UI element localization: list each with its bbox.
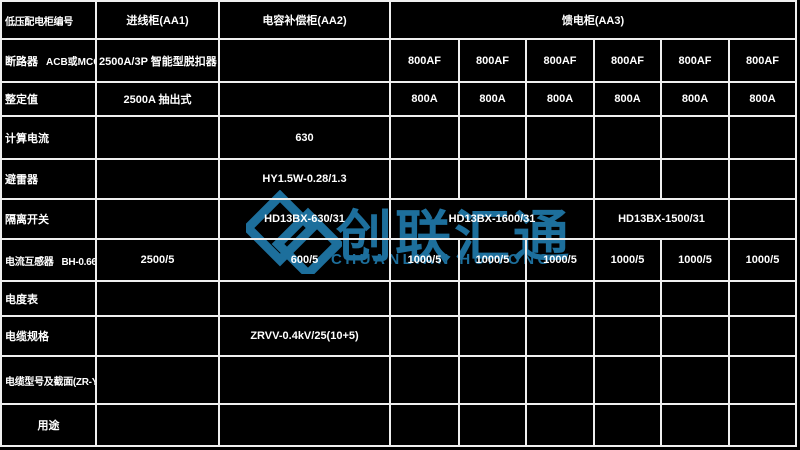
empty-cell (459, 356, 526, 404)
row-ct: 电流互感器BH-0.66 2500/5 600/5 1000/5 1000/5 … (1, 239, 796, 281)
empty-cell (526, 356, 594, 404)
ct-feeder-4: 1000/5 (594, 239, 661, 281)
header-feeder-aa3: 馈电柜(AA3) (390, 1, 796, 39)
setting-feeder-1: 800A (390, 82, 459, 116)
empty-cell (390, 116, 459, 159)
empty-cell (729, 356, 796, 404)
empty-cell (96, 404, 219, 446)
cable-spec-value: ZRVV-0.4kV/25(10+5) (219, 316, 390, 356)
empty-cell (661, 356, 729, 404)
empty-cell (219, 281, 390, 316)
empty-cell (390, 159, 459, 199)
spec-table: 低压配电柜编号 进线柜(AA1) 电容补偿柜(AA2) 馈电柜(AA3) 断路器… (0, 0, 797, 447)
purpose-label: 用途 (1, 404, 96, 446)
isolator-feeder-group2: HD13BX-1500/31 (594, 199, 729, 239)
empty-cell (729, 159, 796, 199)
row-purpose: 用途 (1, 404, 796, 446)
isolator-label: 隔离开关 (1, 199, 96, 239)
setting-feeder-3: 800A (526, 82, 594, 116)
setting-label: 整定值 (1, 82, 96, 116)
empty-cell (661, 159, 729, 199)
empty-cell (526, 159, 594, 199)
empty-cell (594, 316, 661, 356)
empty-cell (96, 316, 219, 356)
ct-feeder-1: 1000/5 (390, 239, 459, 281)
empty-cell (594, 159, 661, 199)
row-meter: 电度表 (1, 281, 796, 316)
header-corner: 低压配电柜编号 (1, 1, 96, 39)
empty-cell (96, 116, 219, 159)
breaker-feeder-4: 800AF (594, 39, 661, 82)
empty-cell (594, 116, 661, 159)
ct-feeder-3: 1000/5 (526, 239, 594, 281)
empty-cell (729, 316, 796, 356)
cable-spec-label: 电缆规格 (1, 316, 96, 356)
breaker-incoming-value: 2500A/3P 智能型脱扣器 (96, 39, 219, 82)
breaker-sublabel: ACB或MCCB (46, 57, 96, 68)
empty-cell (594, 356, 661, 404)
setting-feeder-5: 800A (661, 82, 729, 116)
row-isolator: 隔离开关 HD13BX-630/31 HD13BX-1600/31 HD13BX… (1, 199, 796, 239)
row-breaker-label: 断路器ACB或MCCB (1, 39, 96, 82)
meter-label: 电度表 (1, 281, 96, 316)
row-calc-current: 计算电流 630 (1, 116, 796, 159)
header-compensation-aa2: 电容补偿柜(AA2) (219, 1, 390, 39)
empty-cell (96, 281, 219, 316)
cable-model-label: 电缆型号及截面(ZR-YJV22) (1, 356, 96, 404)
empty-cell (526, 116, 594, 159)
calc-current-label: 计算电流 (1, 116, 96, 159)
empty-cell (729, 116, 796, 159)
empty-cell (661, 116, 729, 159)
empty-cell (219, 356, 390, 404)
setting-feeder-6: 800A (729, 82, 796, 116)
ct-feeder-6: 1000/5 (729, 239, 796, 281)
calc-current-value: 630 (219, 116, 390, 159)
empty-cell (96, 356, 219, 404)
empty-cell (526, 404, 594, 446)
ct-incoming-value: 2500/5 (96, 239, 219, 281)
empty-cell (729, 199, 796, 239)
empty-cell (594, 281, 661, 316)
breaker-feeder-2: 800AF (459, 39, 526, 82)
ct-model: BH-0.66 (62, 257, 97, 268)
empty-cell (219, 82, 390, 116)
arrester-value: HY1.5W-0.28/1.3 (219, 159, 390, 199)
empty-cell (526, 281, 594, 316)
breaker-label: 断路器 (5, 56, 38, 68)
ct-label: 电流互感器 (5, 257, 54, 268)
empty-cell (661, 316, 729, 356)
ct-label-cell: 电流互感器BH-0.66 (1, 239, 96, 281)
breaker-feeder-1: 800AF (390, 39, 459, 82)
isolator-feeder-group1: HD13BX-1600/31 (390, 199, 594, 239)
empty-cell (96, 199, 219, 239)
empty-cell (594, 404, 661, 446)
empty-cell (219, 39, 390, 82)
empty-cell (459, 281, 526, 316)
empty-cell (459, 116, 526, 159)
ct-feeder-5: 1000/5 (661, 239, 729, 281)
setting-incoming-value: 2500A 抽出式 (96, 82, 219, 116)
empty-cell (459, 404, 526, 446)
empty-cell (96, 159, 219, 199)
row-cable-model: 电缆型号及截面(ZR-YJV22) (1, 356, 796, 404)
ct-compensation-value: 600/5 (219, 239, 390, 281)
empty-cell (661, 281, 729, 316)
header-incoming-aa1: 进线柜(AA1) (96, 1, 219, 39)
ct-feeder-2: 1000/5 (459, 239, 526, 281)
row-setting: 整定值 2500A 抽出式 800A 800A 800A 800A 800A 8… (1, 82, 796, 116)
empty-cell (459, 316, 526, 356)
header-row: 低压配电柜编号 进线柜(AA1) 电容补偿柜(AA2) 馈电柜(AA3) (1, 1, 796, 39)
empty-cell (729, 281, 796, 316)
empty-cell (390, 281, 459, 316)
empty-cell (526, 316, 594, 356)
empty-cell (390, 404, 459, 446)
empty-cell (219, 404, 390, 446)
cad-drawing-screen: 创联汇通 CHUANLIAN HUITONG 低压配电柜编号 进线柜(AA1) … (0, 0, 800, 450)
row-breaker: 断路器ACB或MCCB 2500A/3P 智能型脱扣器 800AF 800AF … (1, 39, 796, 82)
setting-feeder-2: 800A (459, 82, 526, 116)
breaker-feeder-6: 800AF (729, 39, 796, 82)
setting-feeder-4: 800A (594, 82, 661, 116)
arrester-label: 避雷器 (1, 159, 96, 199)
empty-cell (390, 356, 459, 404)
row-cable-spec: 电缆规格 ZRVV-0.4kV/25(10+5) (1, 316, 796, 356)
isolator-compensation-value: HD13BX-630/31 (219, 199, 390, 239)
empty-cell (459, 159, 526, 199)
breaker-feeder-5: 800AF (661, 39, 729, 82)
row-arrester: 避雷器 HY1.5W-0.28/1.3 (1, 159, 796, 199)
breaker-feeder-3: 800AF (526, 39, 594, 82)
empty-cell (661, 404, 729, 446)
empty-cell (390, 316, 459, 356)
empty-cell (729, 404, 796, 446)
